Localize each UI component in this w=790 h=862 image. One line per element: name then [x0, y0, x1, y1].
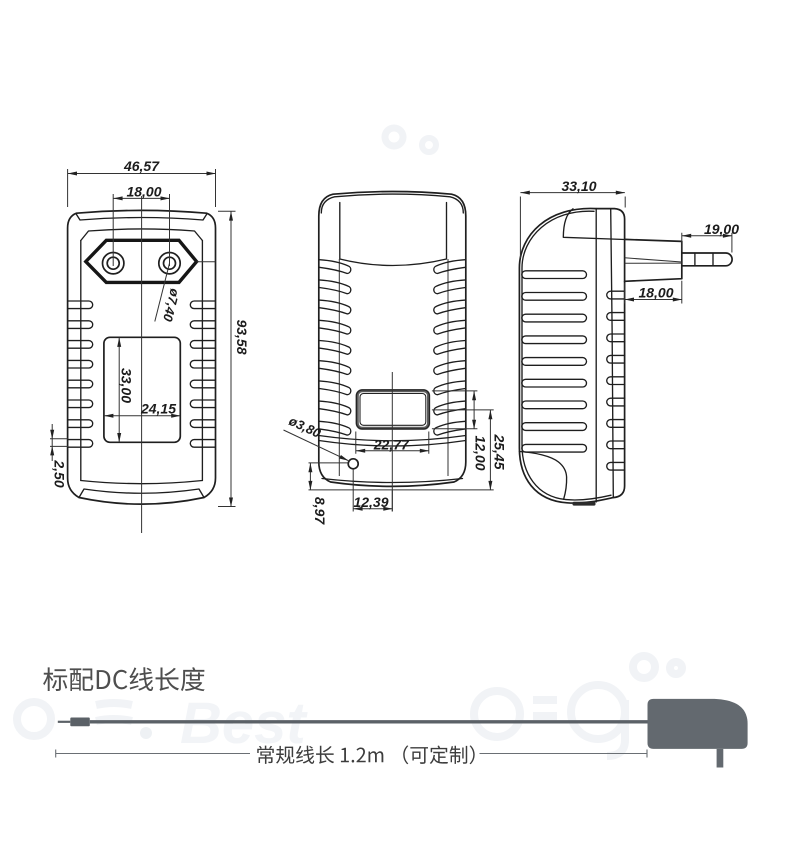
svg-text:12,39: 12,39 — [353, 494, 388, 510]
svg-text:93,58: 93,58 — [234, 319, 250, 354]
svg-text:18,00: 18,00 — [126, 183, 161, 199]
svg-text:46,57: 46,57 — [123, 158, 160, 174]
svg-text:ø7,40: ø7,40 — [160, 287, 183, 324]
svg-text:24,15: 24,15 — [140, 400, 176, 416]
svg-text:18,00: 18,00 — [638, 285, 673, 301]
svg-text:8,97: 8,97 — [312, 497, 328, 525]
svg-text:2,50: 2,50 — [52, 459, 68, 487]
svg-text:22,77: 22,77 — [373, 436, 410, 452]
svg-text:19,00: 19,00 — [704, 221, 739, 237]
svg-text:25,45: 25,45 — [491, 433, 507, 469]
svg-text:33,10: 33,10 — [561, 178, 596, 194]
svg-text:33,00: 33,00 — [119, 368, 135, 403]
svg-text:12,00: 12,00 — [473, 435, 489, 470]
